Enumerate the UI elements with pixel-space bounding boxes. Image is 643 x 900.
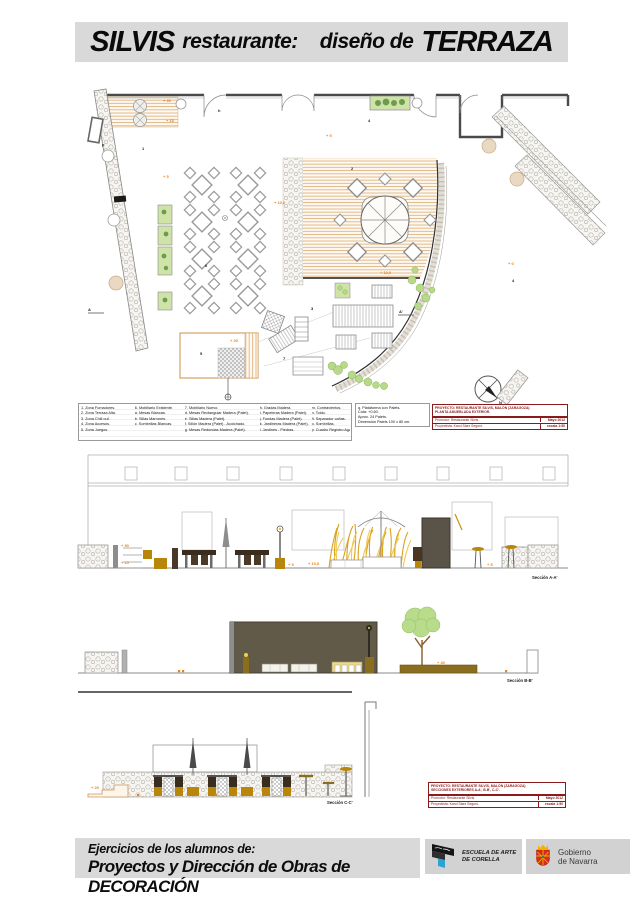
section-c-drawing: + 20 Sección C-C' — [75, 688, 385, 810]
svg-text:+ 15: + 15 — [121, 560, 130, 565]
stone-table-icon — [109, 276, 123, 290]
title-restaurante: restaurante: — [182, 30, 297, 54]
table-set — [235, 550, 269, 568]
dark-panel — [413, 514, 462, 568]
svg-text:A': A' — [399, 309, 403, 314]
marker-dot — [505, 670, 507, 672]
chair-group — [207, 775, 237, 796]
navarra-logo-box: Gobierno de Navarra — [526, 839, 630, 874]
title-block-head: PROYECTO: RESTAURANTE SILVIS, MALÓN (ZAR… — [433, 405, 567, 417]
svg-text:Sección A-A': Sección A-A' — [532, 575, 558, 580]
escuela-logo-icon — [431, 843, 457, 871]
pallet-shelves — [123, 548, 142, 568]
svg-text:3: 3 — [311, 306, 314, 311]
footer-line1: Ejercicios de los alumnos de: — [88, 842, 420, 856]
svg-text:+ 5: + 5 — [326, 133, 332, 138]
footer-line2: Proyectos y Dirección de Obras de DECORA… — [88, 857, 420, 897]
title-block-head: PROYECTO: RESTAURANTE SILVIS, MALÓN (ZAR… — [429, 783, 565, 795]
bar-stool-icon — [472, 547, 484, 568]
legend-box: 1. Zona Fumadores. 2. Zona Terraza Alta.… — [78, 403, 352, 441]
stone-wall-right — [502, 547, 528, 568]
svg-text:+ 15: + 15 — [166, 118, 175, 123]
stone-bench — [497, 370, 528, 405]
palets-note-box: q. Plataforma con Palets. Cota: +0,60. A… — [355, 403, 430, 427]
marker-dot — [182, 670, 184, 672]
poster-page: SILVIS restaurante: diseño de TERRAZA + … — [0, 0, 643, 900]
svg-text:+ 10,0: + 10,0 — [274, 200, 286, 205]
marker-dot — [215, 794, 217, 796]
floor-plan-drawing: + 90 + 15 h + 10,0 + 10,0 — [68, 80, 643, 405]
stone-wall-left — [78, 545, 108, 568]
svg-text:4: 4 — [368, 118, 371, 123]
post — [122, 650, 127, 673]
title-diseno: diseño de — [320, 30, 414, 54]
wood-plank — [172, 548, 178, 569]
table-set — [182, 550, 216, 568]
marker-dot — [178, 670, 180, 672]
door-arcs — [204, 95, 478, 117]
stone-wall-left — [85, 652, 118, 673]
title-terraza: TERRAZA — [421, 26, 553, 59]
svg-text:+ 90: + 90 — [121, 543, 130, 548]
svg-text:+ 10,0: + 10,0 — [380, 270, 392, 275]
ochre-box — [241, 787, 253, 796]
pallet-benches — [331, 557, 401, 568]
svg-text:+ 40: + 40 — [437, 660, 446, 665]
closed-umbrella-icon — [223, 518, 230, 568]
marker-dot — [137, 794, 139, 796]
chair-group — [153, 775, 183, 796]
canopy-frame — [153, 745, 257, 772]
planter-strip — [158, 205, 172, 310]
stage-platform: + 20 — [180, 333, 258, 400]
stone-wall-right — [528, 545, 558, 568]
escuela-logo-box: ESCUELA DE ARTE DE CORELLA — [425, 839, 522, 874]
bench-icon — [114, 195, 126, 202]
svg-text:Sección B-B': Sección B-B' — [507, 678, 533, 683]
footer-strip: Ejercicios de los alumnos de: Proyectos … — [75, 838, 420, 878]
title-block-sections: PROYECTO: RESTAURANTE SILVIS, MALÓN (ZAR… — [428, 782, 566, 808]
post — [113, 545, 118, 568]
chair-group — [261, 775, 291, 796]
main-deck-terraza-alta: + 10,0 + 10,0 — [274, 158, 438, 285]
long-planter — [400, 665, 477, 673]
svg-text:+ 0: + 0 — [508, 261, 514, 266]
svg-text:+ 20: + 20 — [230, 338, 239, 343]
svg-text:+ 20: + 20 — [91, 785, 100, 790]
section-a-drawing: + 90 + 15 + 5 + 10,0 — [75, 452, 572, 585]
svg-text:A: A — [88, 307, 91, 312]
legend-col-madera: h. Gradas Madera. i. Papeleras Madera (P… — [260, 406, 312, 439]
ochre-box — [154, 558, 167, 569]
svg-text:h: h — [218, 108, 221, 113]
building-facade — [230, 622, 377, 673]
stone-paths-top-right — [482, 106, 606, 245]
title-block-plan: PROYECTO: RESTAURANTE SILVIS, MALÓN (ZAR… — [432, 404, 568, 430]
svg-text:Sección C-C': Sección C-C' — [327, 800, 353, 805]
escuela-logo-text: ESCUELA DE ARTE DE CORELLA — [462, 850, 516, 864]
small-table-icon — [108, 214, 120, 226]
svg-text:+ 5: + 5 — [163, 174, 169, 179]
section-b-drawing: + 40 Sección B-B' — [75, 600, 545, 692]
svg-text:+ 10,0: + 10,0 — [308, 561, 320, 566]
navarra-logo-text: Gobierno de Navarra — [558, 848, 598, 866]
stairs-icon — [295, 317, 308, 341]
table-clusters — [184, 167, 265, 313]
bench-slats — [293, 357, 323, 375]
ochre-stool — [143, 550, 152, 559]
legend-col-varios: m. Contravientos. n. Toldo. ñ. Separador… — [312, 406, 350, 439]
tall-pole — [365, 702, 376, 797]
svg-text:1: 1 — [142, 146, 145, 151]
navarra-logo-icon — [534, 844, 553, 870]
svg-text:4: 4 — [512, 278, 515, 283]
legend-col-existente: 6. Mobiliario Existente. a. Mesas Blanca… — [135, 406, 185, 439]
title-silvis: SILVIS — [90, 26, 174, 59]
svg-text:+ 5: + 5 — [487, 562, 493, 567]
door-frame — [527, 650, 538, 673]
closed-umbrella-icon — [190, 738, 251, 775]
legend-col-nuevo: 7. Mobiliario Nuevo. d. Mesas Rectangula… — [185, 406, 260, 439]
street-lamp-icon — [275, 526, 285, 569]
tree-icon — [402, 607, 440, 665]
legend-col-zones: 1. Zona Fumadores. 2. Zona Terraza Alta.… — [81, 406, 135, 439]
compass-icon: N — [475, 376, 502, 405]
svg-text:+ 5: + 5 — [288, 562, 294, 567]
svg-text:+ 90: + 90 — [163, 98, 172, 103]
poster-title-bar: SILVIS restaurante: diseño de TERRAZA — [75, 22, 568, 62]
small-table-icon — [102, 150, 114, 162]
facade-band — [88, 455, 568, 568]
ochre-box — [187, 787, 199, 796]
